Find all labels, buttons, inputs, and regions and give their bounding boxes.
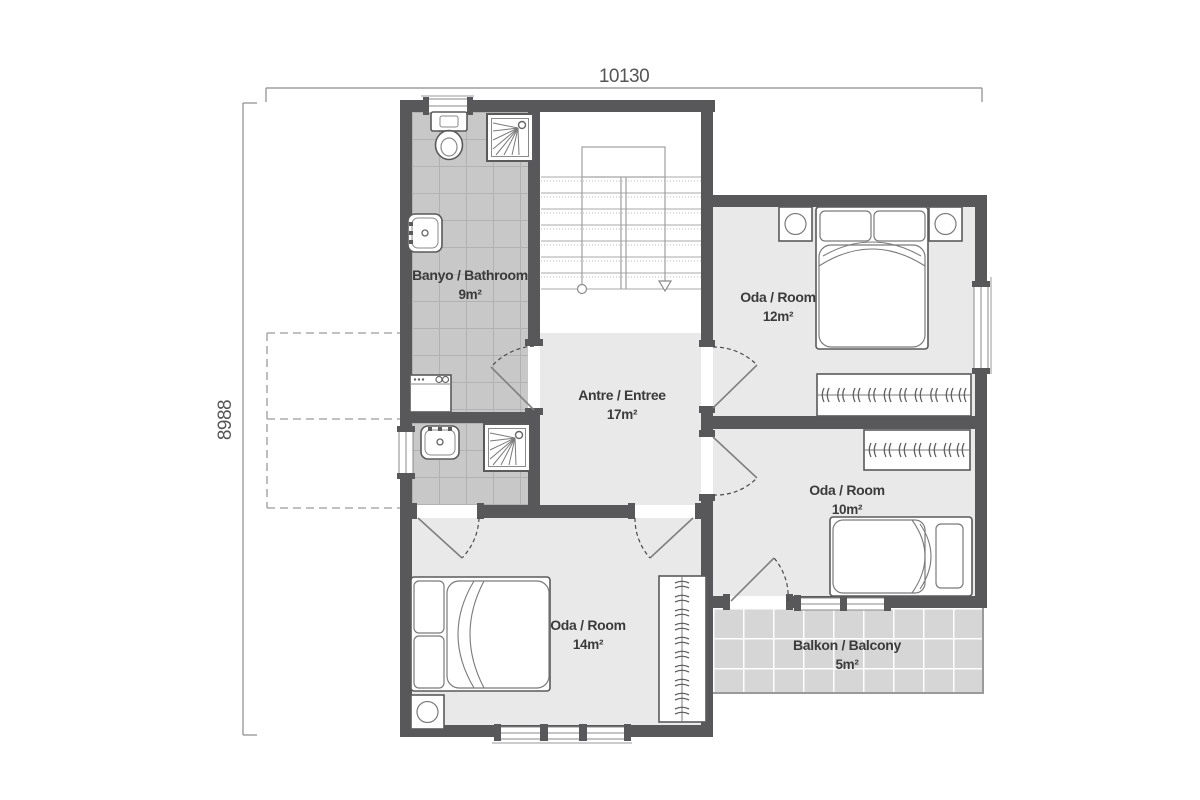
label-bedroom12: Oda / Room 12m² xyxy=(698,288,858,326)
room-area: 10m² xyxy=(767,501,927,520)
window-ensuite-left xyxy=(397,426,415,479)
toilet xyxy=(431,112,467,160)
window-bedroom14-bottom xyxy=(492,724,632,743)
washing-machine xyxy=(410,375,451,412)
window-bedroom12-right xyxy=(972,277,991,374)
room-area: 9m² xyxy=(390,286,550,305)
room-name: Oda / Room xyxy=(698,288,858,308)
label-entree: Antre / Entree 17m² xyxy=(542,386,702,424)
room-name: Banyo / Bathroom xyxy=(390,266,550,286)
shower-bathroom xyxy=(487,114,533,161)
door-bedroom14-ensuite xyxy=(410,503,484,558)
nightstand-right xyxy=(929,207,962,241)
room-area: 17m² xyxy=(542,406,702,425)
dimension-top xyxy=(266,88,982,102)
room-name: Oda / Room xyxy=(508,616,668,636)
room-area: 5m² xyxy=(767,656,927,675)
shower-ensuite xyxy=(484,424,530,471)
door-bedroom14-entree xyxy=(628,503,702,558)
staircase xyxy=(541,147,701,294)
nightstand-left xyxy=(779,207,812,241)
nightstand-bedroom14 xyxy=(411,695,444,729)
sink-bathroom xyxy=(408,214,442,252)
label-bedroom10: Oda / Room 10m² xyxy=(767,481,927,519)
label-bathroom: Banyo / Bathroom 9m² xyxy=(390,266,550,304)
door-balcony xyxy=(723,558,793,610)
footprint-dashed-outline xyxy=(267,333,400,508)
door-bathroom xyxy=(491,339,543,415)
room-name: Antre / Entree xyxy=(542,386,702,406)
label-balcony: Balkon / Balcony 5m² xyxy=(767,636,927,674)
wardrobe-bedroom12 xyxy=(817,374,971,416)
sink-ensuite xyxy=(421,426,459,459)
label-bedroom14: Oda / Room 14m² xyxy=(508,616,668,654)
room-area: 12m² xyxy=(698,308,858,327)
window-balcony xyxy=(794,595,891,611)
double-bed-bedroom12 xyxy=(816,207,928,349)
room-name: Balkon / Balcony xyxy=(767,636,927,656)
single-bed-bedroom10 xyxy=(830,517,972,596)
dimension-left xyxy=(243,103,257,735)
dimension-top-label: 10130 xyxy=(599,66,649,87)
door-bedroom10 xyxy=(699,430,757,501)
floor-plan: 10130 8988 xyxy=(0,0,1200,800)
dimension-left-label: 8988 xyxy=(215,400,236,440)
room-name: Oda / Room xyxy=(767,481,927,501)
door-bedroom12 xyxy=(699,340,757,413)
room-area: 14m² xyxy=(508,636,668,655)
stair-start-marker xyxy=(578,285,587,294)
wardrobe-bedroom10 xyxy=(864,430,970,470)
